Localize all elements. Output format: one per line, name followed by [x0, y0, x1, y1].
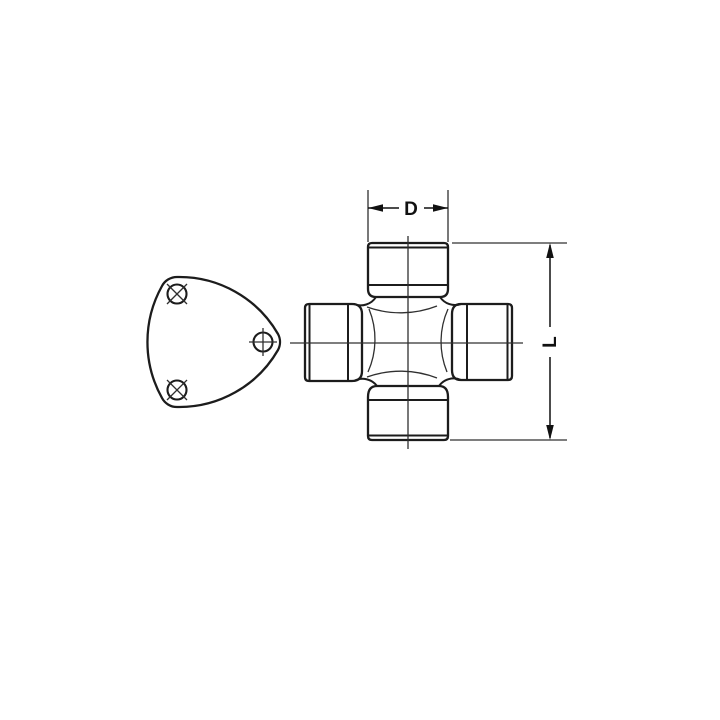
neck-fillet-bottom-left	[354, 379, 377, 386]
centerlines	[290, 236, 523, 449]
neck-fillet-top-left	[354, 297, 376, 305]
bolt-hole-bottom-left	[167, 380, 187, 400]
arrowhead-up-icon	[546, 243, 554, 258]
trunnion-arc-right	[441, 309, 448, 372]
arrowhead-right-icon	[433, 204, 448, 212]
trunnion-arc-bottom	[367, 371, 437, 378]
trunnion-arc-left	[368, 309, 375, 372]
arrowhead-left-icon	[368, 204, 383, 212]
cup-outline	[452, 304, 512, 380]
dimension-l-label: L	[540, 336, 561, 348]
dimension-d: D	[368, 190, 448, 242]
bolt-hole-top-left	[167, 284, 187, 304]
trunnion-arc-top	[367, 306, 437, 313]
bolt-hole-right	[249, 328, 277, 356]
technical-drawing-page: D L	[0, 0, 720, 720]
mounting-flange	[147, 277, 280, 407]
bearing-cup-right	[452, 304, 512, 380]
neck-fillet-top-right	[440, 297, 461, 305]
arrowhead-down-icon	[546, 425, 554, 440]
neck-fillet-bottom-right	[439, 378, 461, 386]
dimension-d-label: D	[404, 199, 418, 220]
ujoint-technical-drawing: D L	[0, 0, 720, 720]
